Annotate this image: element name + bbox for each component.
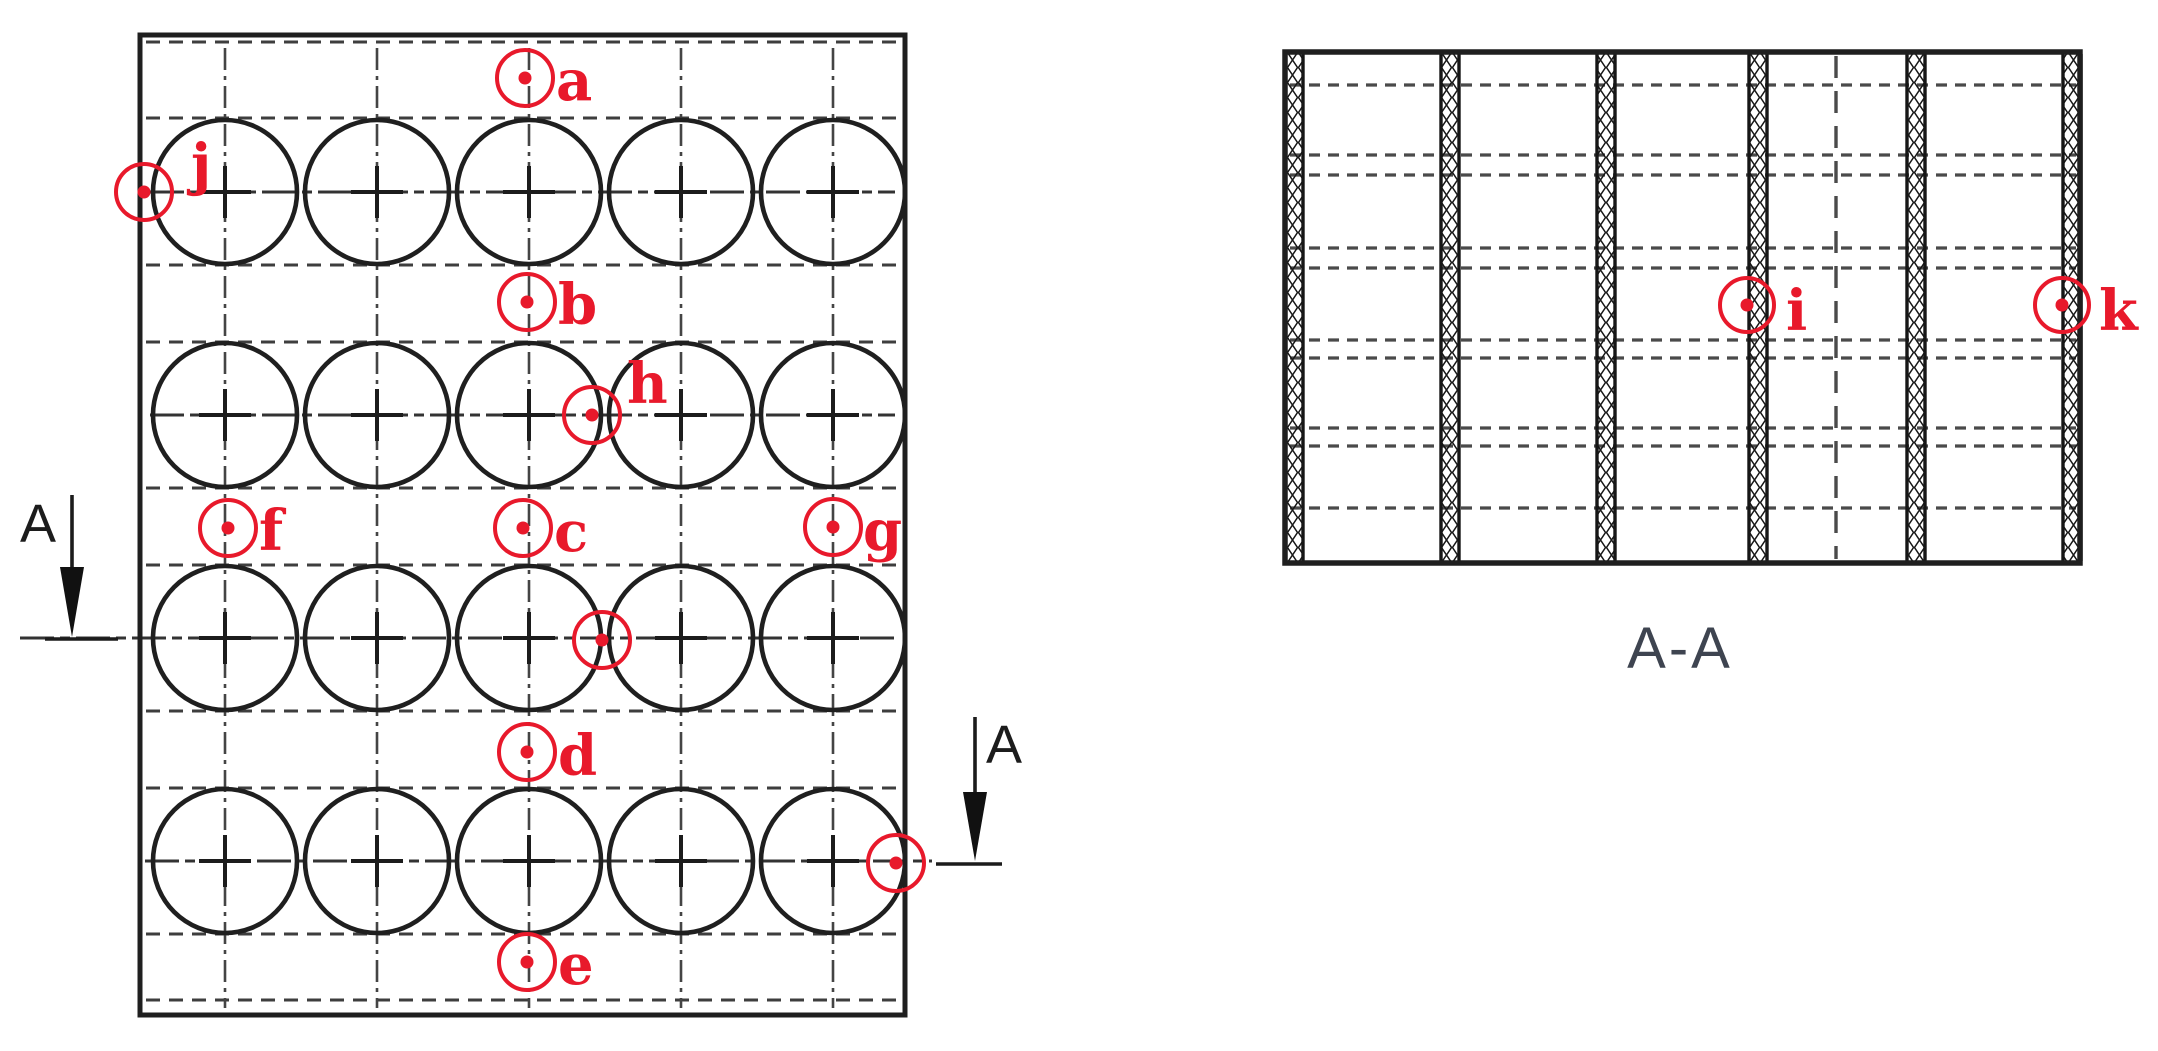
marker-dot (1741, 299, 1754, 312)
marker-label-g: g (863, 498, 902, 564)
marker-f: f (200, 498, 287, 564)
section-arrow-label: A (20, 494, 56, 554)
marker-label-i: i (1786, 278, 1807, 344)
marker-d: d (499, 723, 597, 789)
marker-label-b: b (558, 272, 597, 338)
section-arrow-head (963, 792, 987, 861)
marker-j: j (116, 132, 211, 220)
section-arrow-label: A (986, 715, 1022, 775)
wall-hatch (1907, 54, 1925, 561)
marker-label-k: k (2099, 278, 2139, 344)
marker-label-d: d (558, 723, 597, 789)
section-arrow-left: A (20, 494, 118, 639)
marker-label-e: e (558, 932, 594, 998)
marker-label-a: a (556, 48, 592, 114)
marker-dot (138, 186, 151, 199)
wall-hatch (1441, 54, 1459, 561)
section-outline (1285, 52, 2080, 563)
marker-dot (517, 522, 530, 535)
marker-row3-unlabeled (574, 612, 630, 668)
marker-dot (521, 956, 534, 969)
engineering-drawing-canvas: A A a j b h (0, 0, 2158, 1051)
marker-label-f: f (259, 498, 287, 564)
marker-label-h: h (627, 351, 668, 417)
marker-b: b (499, 272, 597, 338)
section-arrow-head (60, 567, 84, 637)
plan-row-centerlines (20, 192, 932, 861)
section-arrow-right: A (936, 715, 1022, 864)
marker-dot (222, 522, 235, 535)
marker-a: a (497, 48, 592, 114)
marker-dot (586, 409, 599, 422)
marker-dot (521, 296, 534, 309)
section-view-title: A-A (1627, 616, 1733, 681)
marker-c: c (495, 499, 588, 565)
marker-k: k (2035, 278, 2139, 344)
marker-dot (2056, 299, 2069, 312)
section-view: i k A-A (1285, 52, 2139, 681)
marker-dot (890, 857, 903, 870)
plan-view: A A a j b h (20, 35, 1022, 1015)
marker-dot (521, 746, 534, 759)
technical-drawing: A A a j b h (0, 0, 2158, 1051)
marker-dot (596, 634, 609, 647)
marker-e: e (499, 932, 594, 998)
marker-label-c: c (554, 499, 588, 565)
marker-dot (519, 72, 532, 85)
marker-dot (827, 521, 840, 534)
marker-label-j: j (186, 132, 211, 198)
marker-row4-unlabeled (868, 835, 924, 891)
section-dashed-lines (1290, 85, 2076, 508)
wall-hatch (1597, 54, 1615, 561)
section-walls (1285, 54, 2081, 561)
marker-g: g (805, 498, 902, 564)
